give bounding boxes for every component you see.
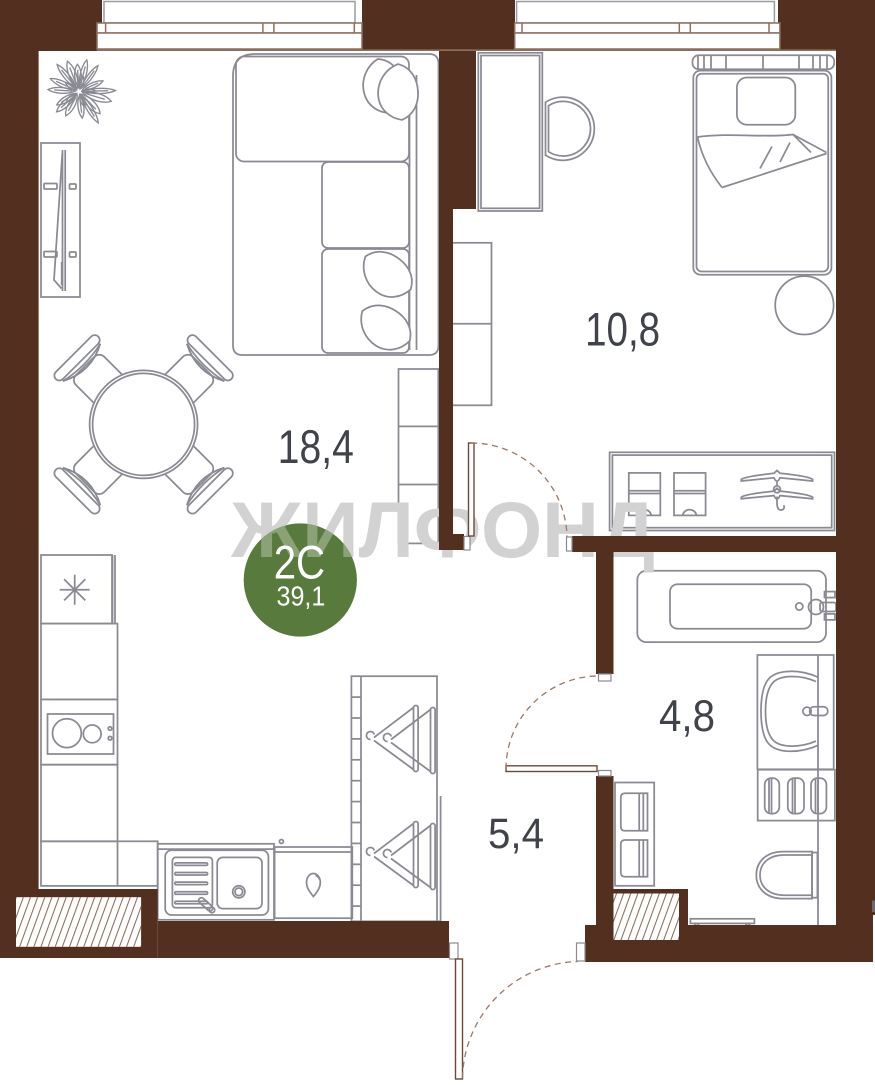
svg-text:10,8: 10,8: [585, 303, 660, 356]
svg-text:4,8: 4,8: [659, 692, 715, 741]
svg-text:39,1: 39,1: [277, 581, 326, 612]
svg-text:18,4: 18,4: [278, 420, 354, 473]
svg-text:5,4: 5,4: [488, 810, 544, 858]
